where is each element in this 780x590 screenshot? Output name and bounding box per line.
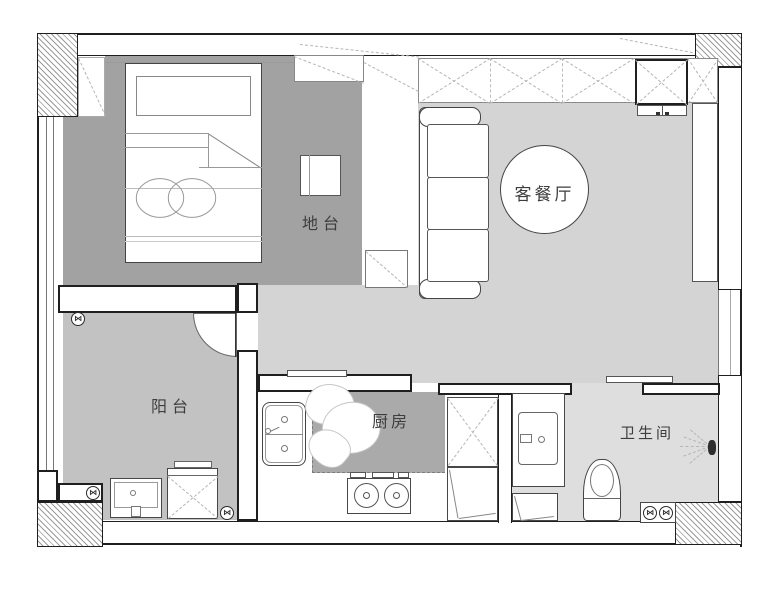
window-right [730, 290, 731, 375]
column-bottom-left [37, 502, 103, 547]
column-bottom-right [675, 502, 742, 545]
wall-bottom [37, 521, 742, 545]
sofa-cushion [427, 177, 489, 230]
wall-right-upper [718, 67, 742, 290]
floor-drain-icon: ⋈ [643, 506, 657, 520]
wardrobe-divider [490, 58, 491, 103]
balcony-sink-drain [130, 490, 136, 496]
room-label-balcony: 阳台 [137, 393, 207, 417]
bed-sheet-line [125, 236, 262, 237]
wall-balcony-kitchen [237, 350, 258, 521]
wall-right-lower [718, 375, 742, 502]
bed-line [125, 133, 208, 134]
kitchen-sink-divider [265, 434, 303, 435]
pass-through [606, 376, 673, 383]
wall-bedroom-balcony [58, 285, 237, 313]
sofa-arm [419, 279, 481, 299]
washing-machine-lid [174, 461, 212, 468]
vanity-handle [520, 434, 532, 443]
room-label-bathroom: 卫生间 [601, 422, 693, 443]
wall-door-post [237, 283, 258, 313]
room-platform-floor [63, 117, 105, 285]
window-left [46, 117, 47, 502]
column-top-left [37, 33, 78, 117]
room-label-living-dining: 客餐厅 [498, 180, 591, 205]
toilet-tank-line [584, 498, 620, 499]
fridge-door-divider [662, 105, 663, 116]
room-label-platform: 地台 [288, 210, 358, 234]
washing-machine-line [167, 475, 218, 476]
wall-kitchen-bathroom [498, 395, 512, 523]
window-left [53, 117, 54, 502]
bed-line [125, 147, 208, 148]
cabinet-strip-right [692, 103, 718, 282]
bed-fold [199, 167, 262, 168]
balcony-sink-basin [114, 482, 158, 508]
door-handle [656, 112, 660, 115]
wardrobe-divider [562, 58, 563, 103]
overhead-cabinet-dash [364, 62, 419, 92]
bed-headboard [136, 76, 251, 116]
sofa-cushion [427, 229, 489, 282]
balcony-step [37, 470, 58, 502]
stove-burner-center [363, 492, 370, 499]
kitchen-sink-drain [281, 416, 288, 423]
toilet-bowl [590, 464, 614, 497]
pass-through [287, 370, 347, 377]
floor-drain-icon: ⋈ [220, 506, 234, 520]
vanity-drain [538, 436, 545, 443]
bed-sheet-line [125, 241, 262, 242]
room-living-floor [258, 285, 418, 383]
window-right [718, 290, 719, 375]
floor-drain-icon: ⋈ [86, 486, 100, 500]
side-table-line [309, 155, 310, 196]
balcony-sink-faucet [131, 506, 141, 517]
door-leaf [235, 313, 236, 357]
kitchen-sink-drain [281, 445, 288, 452]
floor-drain-icon: ⋈ [71, 312, 85, 326]
side-table [300, 155, 341, 196]
room-label-kitchen: 厨房 [356, 408, 426, 432]
door-handle [665, 112, 669, 115]
floor-drain-icon: ⋈ [659, 506, 673, 520]
shower-icon [708, 440, 716, 455]
shower-spray [680, 446, 710, 447]
floor-plan: 地台 客餐厅 ⋈ 阳台 ⋈ ⋈ 厨房 卫生间 [0, 0, 780, 590]
bed-fold [208, 133, 209, 167]
sofa-cushion [427, 124, 489, 178]
stove-burner-center [393, 492, 400, 499]
wall-bathroom-top-right [642, 383, 720, 395]
